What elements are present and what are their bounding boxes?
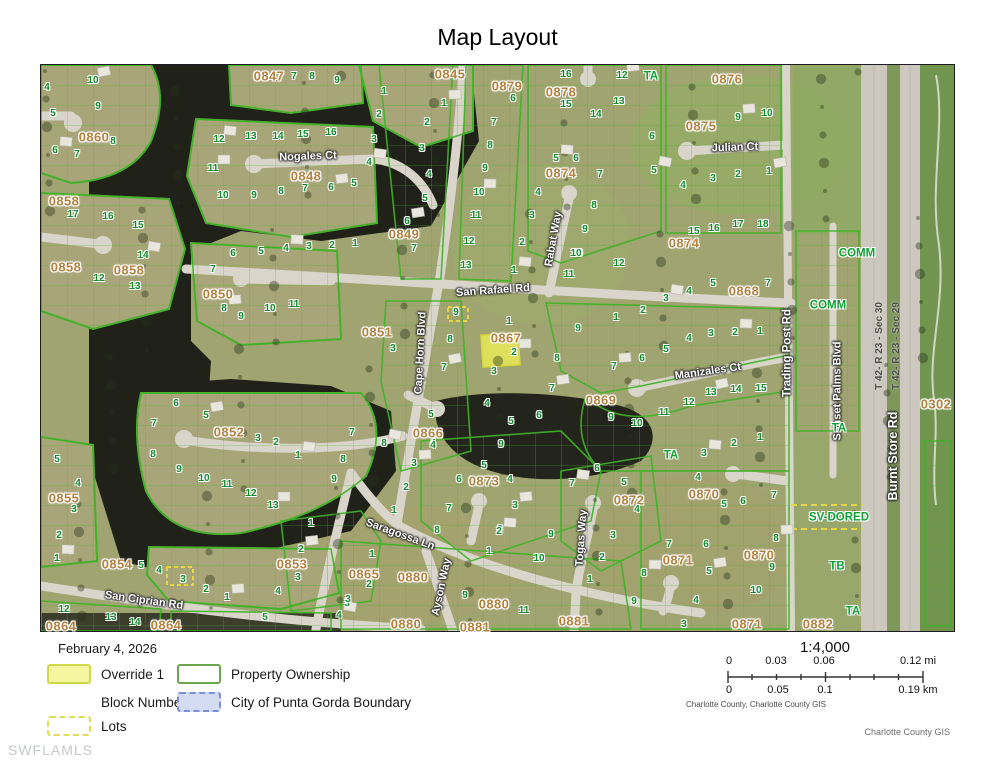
lot-label: 5 xyxy=(138,561,144,571)
lot-label: 13 xyxy=(129,282,140,292)
block-label: 0865 xyxy=(349,568,380,581)
block-label: 0873 xyxy=(469,475,500,488)
lot-label: 8 xyxy=(340,455,346,465)
lot-label: 13 xyxy=(245,132,256,142)
lot-label: 4 xyxy=(156,566,162,576)
lot-label: 8 xyxy=(381,439,387,449)
lot-label: 8 xyxy=(487,141,493,151)
block-label: 0858 xyxy=(114,264,145,277)
lot-label: 1 xyxy=(54,554,60,564)
lot-label: 4 xyxy=(336,611,342,621)
lot-label: 12 xyxy=(683,398,694,408)
scale-mi-3: 0.12 mi xyxy=(900,655,936,667)
lot-label: 3 xyxy=(529,211,535,221)
lot-label: 5 xyxy=(621,478,627,488)
block-label: 0850 xyxy=(203,288,234,301)
lot-label: 2 xyxy=(376,110,382,120)
lot-label: 5 xyxy=(54,455,60,465)
lot-label: 16 xyxy=(102,212,113,222)
lot-label: 4 xyxy=(686,287,692,297)
lot-label: 15 xyxy=(132,221,143,231)
override-swatch xyxy=(47,664,91,684)
lot-label: 12 xyxy=(93,274,104,284)
lot-label: 11 xyxy=(471,211,482,221)
lot-label: 5 xyxy=(262,613,268,623)
block-label: 0858 xyxy=(49,195,80,208)
property-ownership-swatch xyxy=(177,664,221,684)
lot-label: 15 xyxy=(297,130,308,140)
gis-credit: Charlotte County GIS xyxy=(864,727,950,737)
block-label: 0874 xyxy=(546,167,577,180)
lot-label: 10 xyxy=(217,191,228,201)
zone-label: TA xyxy=(644,71,658,83)
block-label: 0880 xyxy=(398,571,429,584)
block-label: 0854 xyxy=(102,558,133,571)
lot-label: 6 xyxy=(404,217,410,227)
lot-label: 2 xyxy=(640,306,646,316)
street-label: Cape Horn Blvd xyxy=(413,312,428,395)
lot-label: 4 xyxy=(695,473,701,483)
lot-label: 2 xyxy=(56,531,62,541)
block-label: 0849 xyxy=(389,228,420,241)
lot-label: 7 xyxy=(549,384,555,394)
block-label: 0870 xyxy=(744,549,775,562)
lot-label: 4 xyxy=(366,158,372,168)
lot-label: 5 xyxy=(50,109,56,119)
lot-label: 7 xyxy=(611,362,617,372)
lot-label: 9 xyxy=(95,102,101,112)
lot-label: 8 xyxy=(773,534,779,544)
block-label: 0858 xyxy=(51,261,82,274)
lot-label: 9 xyxy=(608,413,614,423)
lot-label: 1 xyxy=(486,547,492,557)
lot-label: 9 xyxy=(631,597,637,607)
lot-label: 3 xyxy=(512,501,518,511)
lot-label: 3 xyxy=(710,174,716,184)
block-label: 0855 xyxy=(49,492,80,505)
block-label: 0864 xyxy=(46,620,77,633)
lot-label: 5 xyxy=(258,247,264,257)
lot-label: 1 xyxy=(369,550,375,560)
lot-label: 2 xyxy=(732,328,738,338)
zone-label: TB xyxy=(829,561,844,573)
lot-label: 2 xyxy=(496,527,502,537)
lot-label: 3 xyxy=(295,573,301,583)
block-label: 0878 xyxy=(546,86,577,99)
legend-label: Override 1 xyxy=(101,667,164,682)
block-label: 0871 xyxy=(732,618,763,631)
block-label: 0881 xyxy=(559,615,590,628)
lot-label: 6 xyxy=(703,540,709,550)
street-label: Julian Ct xyxy=(712,142,759,155)
street-label: Trading Post Rd xyxy=(782,309,794,397)
lot-label: 10 xyxy=(750,586,761,596)
block-label: 0853 xyxy=(277,558,308,571)
lot-label: 9 xyxy=(482,164,488,174)
lot-label: 7 xyxy=(302,184,308,194)
lot-label: 2 xyxy=(599,553,605,563)
block-label: 0860 xyxy=(79,131,110,144)
lot-label: 4 xyxy=(507,475,513,485)
lot-label: 2 xyxy=(731,439,737,449)
lot-label: 2 xyxy=(403,483,409,493)
lot-label: 7 xyxy=(411,244,417,254)
lot-label: 2 xyxy=(366,580,372,590)
lot-label: 2 xyxy=(519,238,525,248)
lot-label: 6 xyxy=(536,411,542,421)
street-label: Togas Way xyxy=(575,509,590,566)
lot-label: 2 xyxy=(203,585,209,595)
lot-label: 2 xyxy=(511,348,517,358)
lot-label: 8 xyxy=(447,335,453,345)
zone-label: SV-DORED xyxy=(809,512,869,524)
lot-label: 16 xyxy=(560,70,571,80)
lot-label: 11 xyxy=(208,164,219,174)
lot-label: 2 xyxy=(298,545,304,555)
lot-label: 17 xyxy=(732,220,743,230)
lot-label: 10 xyxy=(570,249,581,259)
lot-label: 1 xyxy=(224,593,230,603)
lot-label: 6 xyxy=(230,249,236,259)
lot-label: 9 xyxy=(462,591,468,601)
lot-label: 10 xyxy=(533,554,544,564)
lot-label: 17 xyxy=(67,210,78,220)
lot-label: 3 xyxy=(306,242,312,252)
lot-label: 10 xyxy=(198,474,209,484)
legend-item-city-boundary: City of Punta Gorda Boundary xyxy=(177,692,411,712)
block-label: 0879 xyxy=(492,80,523,93)
block-label: 0868 xyxy=(729,285,760,298)
lot-label: 2 xyxy=(329,241,335,251)
lot-label: 5 xyxy=(481,461,487,471)
lot-label: 13 xyxy=(105,613,116,623)
legend-item-override: Override 1 xyxy=(47,664,164,684)
lot-label: 5 xyxy=(706,567,712,577)
lot-label: 1 xyxy=(757,327,763,337)
lot-label: 7 xyxy=(597,170,603,180)
lot-label: 14 xyxy=(590,110,601,120)
lot-label: 11 xyxy=(289,300,300,310)
zone-label: COMM xyxy=(810,300,846,312)
lot-label: 5 xyxy=(428,410,434,420)
lot-label: 3 xyxy=(255,434,261,444)
lot-label: 2 xyxy=(735,170,741,180)
lot-label: 3 xyxy=(390,344,396,354)
block-label: 0851 xyxy=(362,326,393,339)
lot-label: 5 xyxy=(553,154,559,164)
lot-label: 5 xyxy=(508,417,514,427)
map-attribution: Charlotte County, Charlotte County GIS xyxy=(686,700,826,709)
lot-label: 8 xyxy=(221,304,227,314)
block-label: 0864 xyxy=(151,619,182,632)
section-label: T 42- R 23 - Sec 29 xyxy=(892,302,902,390)
lot-label: 9 xyxy=(334,76,340,86)
scale-km-2: 0.1 xyxy=(817,684,832,696)
lot-label: 6 xyxy=(639,354,645,364)
lot-label: 1 xyxy=(352,239,358,249)
lot-label: 11 xyxy=(222,480,233,490)
street-label: San Ciprian Rd xyxy=(104,590,184,612)
lot-label: 14 xyxy=(730,385,741,395)
lot-label: 9 xyxy=(453,308,459,318)
lot-label: 10 xyxy=(87,76,98,86)
lot-label: 3 xyxy=(663,294,669,304)
lot-label: 6 xyxy=(740,497,746,507)
lot-label: 5 xyxy=(663,345,669,355)
street-label: Ayson Way xyxy=(431,557,454,616)
legend-label: City of Punta Gorda Boundary xyxy=(231,695,411,710)
lot-label: 9 xyxy=(251,191,257,201)
lot-label: 15 xyxy=(755,384,766,394)
block-label: 0866 xyxy=(413,427,444,440)
lot-label: 11 xyxy=(519,606,530,616)
map: Nogales CtSan Rafael RdRabat WayJulian C… xyxy=(40,64,955,632)
street-label: San Rafael Rd xyxy=(456,283,531,299)
scale-mi-1: 0.03 xyxy=(765,655,786,667)
lot-label: 1 xyxy=(391,506,397,516)
block-label: 0845 xyxy=(435,68,466,81)
lot-label: 18 xyxy=(757,220,768,230)
lot-label: 9 xyxy=(735,113,741,123)
scale-km-3: 0.19 km xyxy=(898,684,937,696)
lot-label: 7 xyxy=(771,491,777,501)
lot-label: 9 xyxy=(582,225,588,235)
lot-label: 16 xyxy=(325,128,336,138)
lot-label: 4 xyxy=(283,244,289,254)
block-label: 0871 xyxy=(663,554,694,567)
lot-label: 8 xyxy=(554,354,560,364)
lot-label: 3 xyxy=(610,531,616,541)
lot-label: 1 xyxy=(511,266,517,276)
block-label: 0875 xyxy=(686,120,717,133)
legend-label: Property Ownership xyxy=(231,667,350,682)
city-boundary-swatch xyxy=(177,692,221,712)
lot-label: 13 xyxy=(460,261,471,271)
lot-label: 15 xyxy=(688,227,699,237)
page-title: Map Layout xyxy=(0,24,995,51)
zone-label: COMM xyxy=(839,248,875,260)
lot-label: 8 xyxy=(278,187,284,197)
lot-label: 10 xyxy=(761,109,772,119)
lot-label: 3 xyxy=(419,144,425,154)
lot-label: 3 xyxy=(345,595,351,605)
lot-label: 1 xyxy=(308,519,314,529)
legend-item-lots: Lots xyxy=(47,716,127,736)
section-label: T 42- R 23 - Sec 30 xyxy=(875,302,885,390)
scale-km-0: 0 xyxy=(726,684,732,696)
lot-label: 10 xyxy=(473,188,484,198)
lot-label: 6 xyxy=(573,154,579,164)
lot-label: 4 xyxy=(426,170,432,180)
lot-label: 1 xyxy=(441,99,447,109)
lot-label: 7 xyxy=(74,150,80,160)
block-label: 0882 xyxy=(803,618,834,631)
lot-label: 7 xyxy=(291,72,297,82)
lot-label: 11 xyxy=(564,270,575,280)
lot-label: 13 xyxy=(267,501,278,511)
lot-label: 7 xyxy=(666,540,672,550)
lot-label: 7 xyxy=(151,419,157,429)
lot-label: 7 xyxy=(491,118,497,128)
lot-label: 3 xyxy=(371,135,377,145)
lot-label: 12 xyxy=(616,71,627,81)
scale-ruler xyxy=(727,671,927,683)
map-labels: Nogales CtSan Rafael RdRabat WayJulian C… xyxy=(41,65,954,631)
lot-label: 14 xyxy=(272,132,283,142)
lot-label: 7 xyxy=(441,363,447,373)
lot-label: 1 xyxy=(506,317,512,327)
lot-label: 2 xyxy=(424,118,430,128)
lot-label: 9 xyxy=(548,530,554,540)
lot-label: 9 xyxy=(769,563,775,573)
lot-label: 4 xyxy=(44,83,50,93)
block-label: 0847 xyxy=(254,70,285,83)
street-label: Nogales Ct xyxy=(279,151,337,164)
lot-label: 4 xyxy=(686,334,692,344)
lot-label: 4 xyxy=(680,181,686,191)
street-label: Saragossa Ln xyxy=(364,517,436,552)
lot-label: 8 xyxy=(309,72,315,82)
lot-label: 7 xyxy=(349,428,355,438)
street-label: Rabat Way xyxy=(544,211,565,268)
legend-item-property-ownership: Property Ownership xyxy=(177,664,350,684)
lot-label: 6 xyxy=(456,475,462,485)
block-label: 0870 xyxy=(689,488,720,501)
lot-label: 7 xyxy=(765,279,771,289)
lot-label: 9 xyxy=(498,440,504,450)
lot-label: 15 xyxy=(560,100,571,110)
lot-label: 5 xyxy=(721,500,727,510)
lot-label: 1 xyxy=(295,451,301,461)
lot-label: 1 xyxy=(381,87,387,97)
lot-label: 3 xyxy=(681,620,687,630)
legend-item-block-number: Block Number xyxy=(47,692,186,712)
block-label: 0874 xyxy=(669,237,700,250)
lot-label: 3 xyxy=(708,329,714,339)
swflamls-watermark: SWFLAMLS xyxy=(8,742,93,758)
legend-label: Block Number xyxy=(101,695,186,710)
lot-label: 6 xyxy=(52,146,58,156)
block-label: 0876 xyxy=(712,73,743,86)
lot-label: 1 xyxy=(757,433,763,443)
lot-label: 16 xyxy=(708,224,719,234)
lots-swatch xyxy=(47,716,91,736)
lot-label: 5 xyxy=(351,179,357,189)
block-label: 0852 xyxy=(214,426,245,439)
lot-label: 4 xyxy=(535,188,541,198)
scale-mi-2: 0.06 xyxy=(813,655,834,667)
lot-label: 4 xyxy=(693,596,699,606)
lot-label: 8 xyxy=(641,569,647,579)
lot-label: 12 xyxy=(58,605,69,615)
lot-label: 6 xyxy=(328,183,334,193)
scale-km-1: 0.05 xyxy=(767,684,788,696)
lot-label: 14 xyxy=(137,251,148,261)
block-label: 0880 xyxy=(391,618,422,631)
lot-label: 6 xyxy=(649,132,655,142)
lot-label: 10 xyxy=(264,304,275,314)
lot-label: 4 xyxy=(484,399,490,409)
lot-label: 4 xyxy=(430,441,436,451)
legend-label: Lots xyxy=(101,719,127,734)
lot-label: 5 xyxy=(422,194,428,204)
block-label: 0880 xyxy=(479,598,510,611)
lot-label: 5 xyxy=(203,411,209,421)
map-date: February 4, 2026 xyxy=(58,641,157,656)
lot-label: 6 xyxy=(594,464,600,474)
lot-label: 7 xyxy=(210,265,216,275)
zone-label: TA xyxy=(846,606,860,618)
lot-label: 8 xyxy=(591,201,597,211)
lot-label: 6 xyxy=(173,399,179,409)
lot-label: 9 xyxy=(331,475,337,485)
lot-label: 9 xyxy=(238,312,244,322)
lot-label: 8 xyxy=(434,526,440,536)
block-label: 0881 xyxy=(460,621,491,634)
block-number-swatch xyxy=(47,692,91,712)
lot-label: 7 xyxy=(446,504,452,514)
lot-label: 5 xyxy=(651,166,657,176)
lot-label: 3 xyxy=(491,367,497,377)
block-label: 0302 xyxy=(921,398,952,411)
lot-label: 6 xyxy=(510,94,516,104)
lot-label: 13 xyxy=(613,97,624,107)
block-label: 0869 xyxy=(586,394,617,407)
lot-label: 9 xyxy=(176,465,182,475)
lot-label: 3 xyxy=(71,505,77,515)
lot-label: 1 xyxy=(766,167,772,177)
lot-label: 12 xyxy=(613,259,624,269)
lot-label: 11 xyxy=(659,408,670,418)
lot-label: 3 xyxy=(180,575,186,585)
scale-ratio: 1:4,000 xyxy=(727,639,923,656)
block-label: 0867 xyxy=(491,332,522,345)
lot-label: 7 xyxy=(569,479,575,489)
lot-label: 4 xyxy=(75,479,81,489)
zone-label: TA xyxy=(832,423,846,435)
zone-label: TA xyxy=(664,450,678,462)
block-label: 0848 xyxy=(291,170,322,183)
lot-label: 3 xyxy=(701,449,707,459)
lot-label: 9 xyxy=(575,324,581,334)
lot-label: 12 xyxy=(463,237,474,247)
street-label: Manizales Ct xyxy=(674,362,742,382)
lot-label: 10 xyxy=(631,419,642,429)
lot-label: 4 xyxy=(634,505,640,515)
lot-label: 4 xyxy=(275,587,281,597)
lot-label: 12 xyxy=(245,489,256,499)
lot-label: 12 xyxy=(213,135,224,145)
street-label: Burnt Store Rd xyxy=(887,412,900,501)
lot-label: 3 xyxy=(411,459,417,469)
lot-label: 14 xyxy=(129,618,140,628)
scale-mi-0: 0 xyxy=(726,655,732,667)
lot-label: 5 xyxy=(710,279,716,289)
lot-label: 1 xyxy=(613,313,619,323)
lot-label: 2 xyxy=(273,438,279,448)
lot-label: 1 xyxy=(587,575,593,585)
lot-label: 8 xyxy=(150,450,156,460)
lot-label: 13 xyxy=(705,388,716,398)
lot-label: 8 xyxy=(110,137,116,147)
